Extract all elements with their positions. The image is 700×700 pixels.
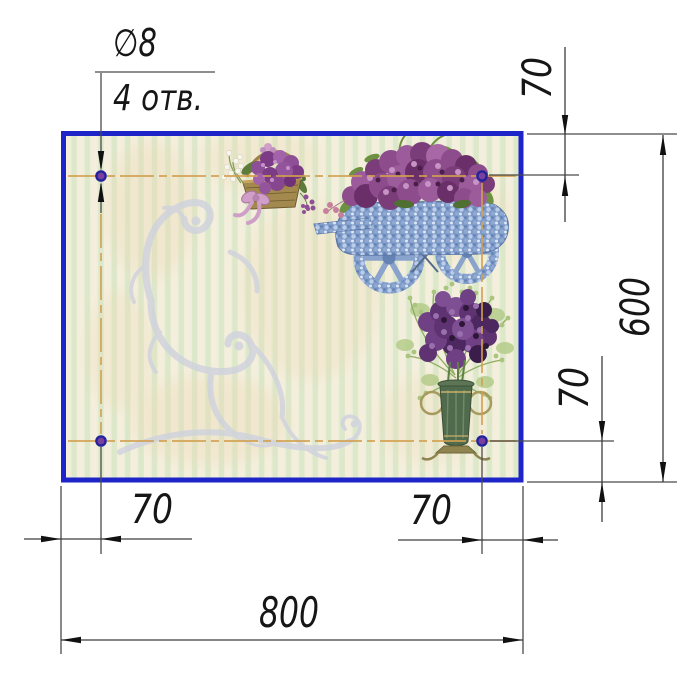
hole-marker-bottom-right	[477, 436, 486, 445]
dim-text-right-bottom-offset: 70	[552, 367, 598, 409]
dim-text-bottom-right-offset: 70	[410, 488, 452, 534]
hole-marker-top-right	[477, 171, 486, 180]
dim-text-height: 600	[613, 277, 659, 337]
dim-text-width: 800	[259, 588, 319, 637]
hole-diameter-label: ∅8	[113, 21, 157, 65]
dim-text-bottom-left-offset: 70	[131, 487, 173, 533]
drawing-svg: ∅8 4 отв. 70 600 70 70 70 800	[0, 0, 700, 700]
technical-drawing-canvas: ∅8 4 отв. 70 600 70 70 70 800	[0, 0, 700, 700]
hole-count-label: 4 отв.	[113, 78, 203, 119]
hole-marker-bottom-left	[96, 436, 105, 445]
dim-text-top-offset: 70	[515, 57, 561, 99]
hole-marker-top-left	[96, 171, 105, 180]
